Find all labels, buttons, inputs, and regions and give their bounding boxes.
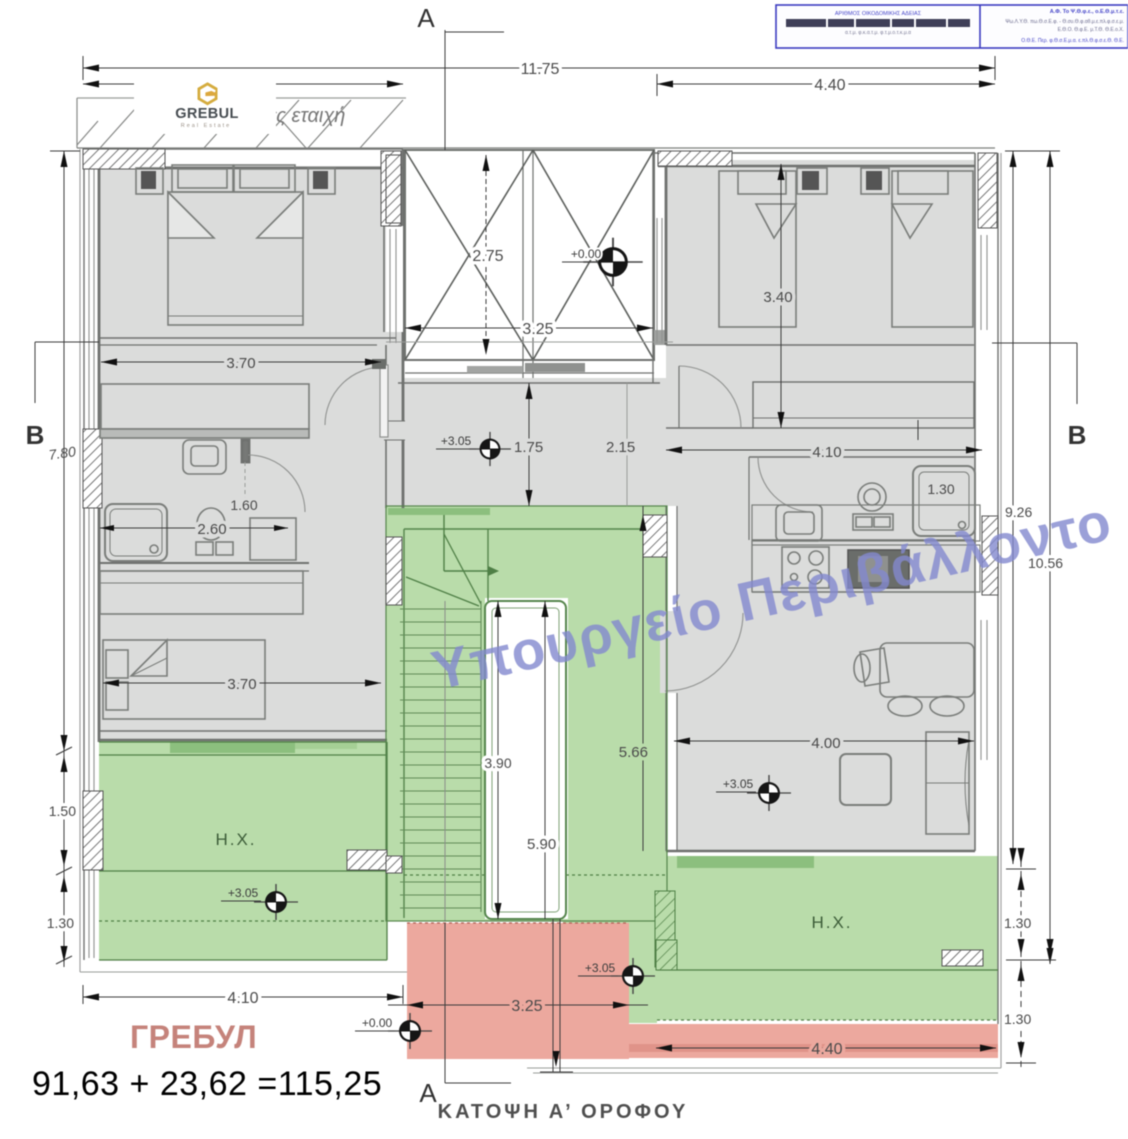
svg-text:4.40: 4.40 bbox=[814, 77, 845, 94]
svg-text:1.75: 1.75 bbox=[514, 439, 543, 456]
svg-text:1.30: 1.30 bbox=[1004, 915, 1031, 931]
svg-text:3.70: 3.70 bbox=[226, 355, 255, 372]
svg-text:A: A bbox=[417, 3, 435, 33]
svg-text:Η.Χ.: Η.Χ. bbox=[215, 830, 256, 849]
svg-text:1.30: 1.30 bbox=[927, 481, 954, 497]
svg-text:Α.Φ. Το Ψ.Θ.φ.ε., ο.Ε.Θ.μ.τ.ε.: Α.Φ. Το Ψ.Θ.φ.ε., ο.Ε.Θ.μ.τ.ε. bbox=[1050, 9, 1125, 15]
svg-text:91,63 + 23,62 =115,25: 91,63 + 23,62 =115,25 bbox=[32, 1065, 382, 1103]
svg-text:3.25: 3.25 bbox=[511, 998, 542, 1015]
svg-text:1.30: 1.30 bbox=[1004, 1011, 1031, 1027]
svg-text:ГРЕБУЛ: ГРЕБУЛ bbox=[130, 1019, 257, 1055]
svg-text:Ο.Θ.Ε. Περ. φ.Θ.σ.Ε.μ.α. ε.πλ.: Ο.Θ.Ε. Περ. φ.Θ.σ.Ε.μ.α. ε.πλ.Θ.φ.σ.ε.Θ.… bbox=[1021, 38, 1124, 44]
svg-text:ες εταιχή: ες εταιχή bbox=[268, 105, 345, 127]
svg-text:2.75: 2.75 bbox=[472, 248, 503, 265]
svg-text:3.90: 3.90 bbox=[484, 755, 511, 771]
svg-text:+3.05: +3.05 bbox=[441, 434, 472, 448]
svg-text:α.τ.μ. φ.κ.α.τ.μ. φ.τ.μ.ο.τ.κ.: α.τ.μ. φ.κ.α.τ.μ. φ.τ.μ.ο.τ.κ.μ.α bbox=[845, 30, 911, 36]
svg-text:Η.Χ.: Η.Χ. bbox=[811, 913, 852, 932]
svg-text:5.66: 5.66 bbox=[619, 744, 648, 761]
svg-text:Ε.Θ.Ο. Θ.φ.Ε. μ.Τ.Θ. Θ.Ε.ο.Χ.: Ε.Θ.Ο. Θ.φ.Ε. μ.Τ.Θ. Θ.Ε.ο.Χ. bbox=[1058, 27, 1124, 33]
svg-text:+0.00: +0.00 bbox=[362, 1016, 393, 1030]
svg-text:4.10: 4.10 bbox=[812, 444, 841, 461]
svg-text:11.75: 11.75 bbox=[521, 61, 560, 78]
svg-text:ΚΑΤΟΨΗ Α’ ΟΡΟΦΟΥ: ΚΑΤΟΨΗ Α’ ΟΡΟΦΟΥ bbox=[438, 1101, 689, 1123]
svg-text:2.60: 2.60 bbox=[197, 521, 226, 538]
svg-text:+0.00: +0.00 bbox=[571, 247, 602, 261]
svg-text:1.30: 1.30 bbox=[47, 915, 74, 931]
svg-text:A: A bbox=[419, 1078, 437, 1108]
svg-text:4.40: 4.40 bbox=[811, 1041, 842, 1058]
svg-text:B: B bbox=[26, 420, 45, 450]
svg-text:+3.05: +3.05 bbox=[723, 777, 754, 791]
svg-text:GREBUL: GREBUL bbox=[175, 106, 239, 122]
svg-text:Ψω.Λ.Υ.Θ. πω.Θ.σ.Ε.φ. - Θ.συ.Θ: Ψω.Λ.Υ.Θ. πω.Θ.σ.Ε.φ. - Θ.συ.Θ.φ.αθ.μ.ε.… bbox=[1005, 19, 1124, 25]
svg-text:3.25: 3.25 bbox=[522, 321, 553, 338]
svg-text:1.60: 1.60 bbox=[230, 497, 257, 513]
svg-text:4.00: 4.00 bbox=[811, 735, 840, 752]
svg-text:ΑΡΙΘΜΟΣ ΟΙΚΟΔΟΜΙΚΗΣ ΑΔΕΙΑΣ: ΑΡΙΘΜΟΣ ΟΙΚΟΔΟΜΙΚΗΣ ΑΔΕΙΑΣ bbox=[835, 11, 922, 17]
svg-text:+3.05: +3.05 bbox=[585, 961, 616, 975]
svg-text:+3.05: +3.05 bbox=[228, 886, 259, 900]
svg-text:B: B bbox=[1068, 420, 1087, 450]
svg-text:1.50: 1.50 bbox=[49, 803, 76, 819]
svg-text:3.40: 3.40 bbox=[763, 289, 792, 306]
svg-text:2.15: 2.15 bbox=[606, 439, 635, 456]
svg-text:Real Estate: Real Estate bbox=[181, 123, 231, 129]
svg-text:3.70: 3.70 bbox=[227, 676, 256, 693]
svg-text:5.90: 5.90 bbox=[527, 836, 556, 853]
svg-text:4.10: 4.10 bbox=[227, 990, 258, 1007]
